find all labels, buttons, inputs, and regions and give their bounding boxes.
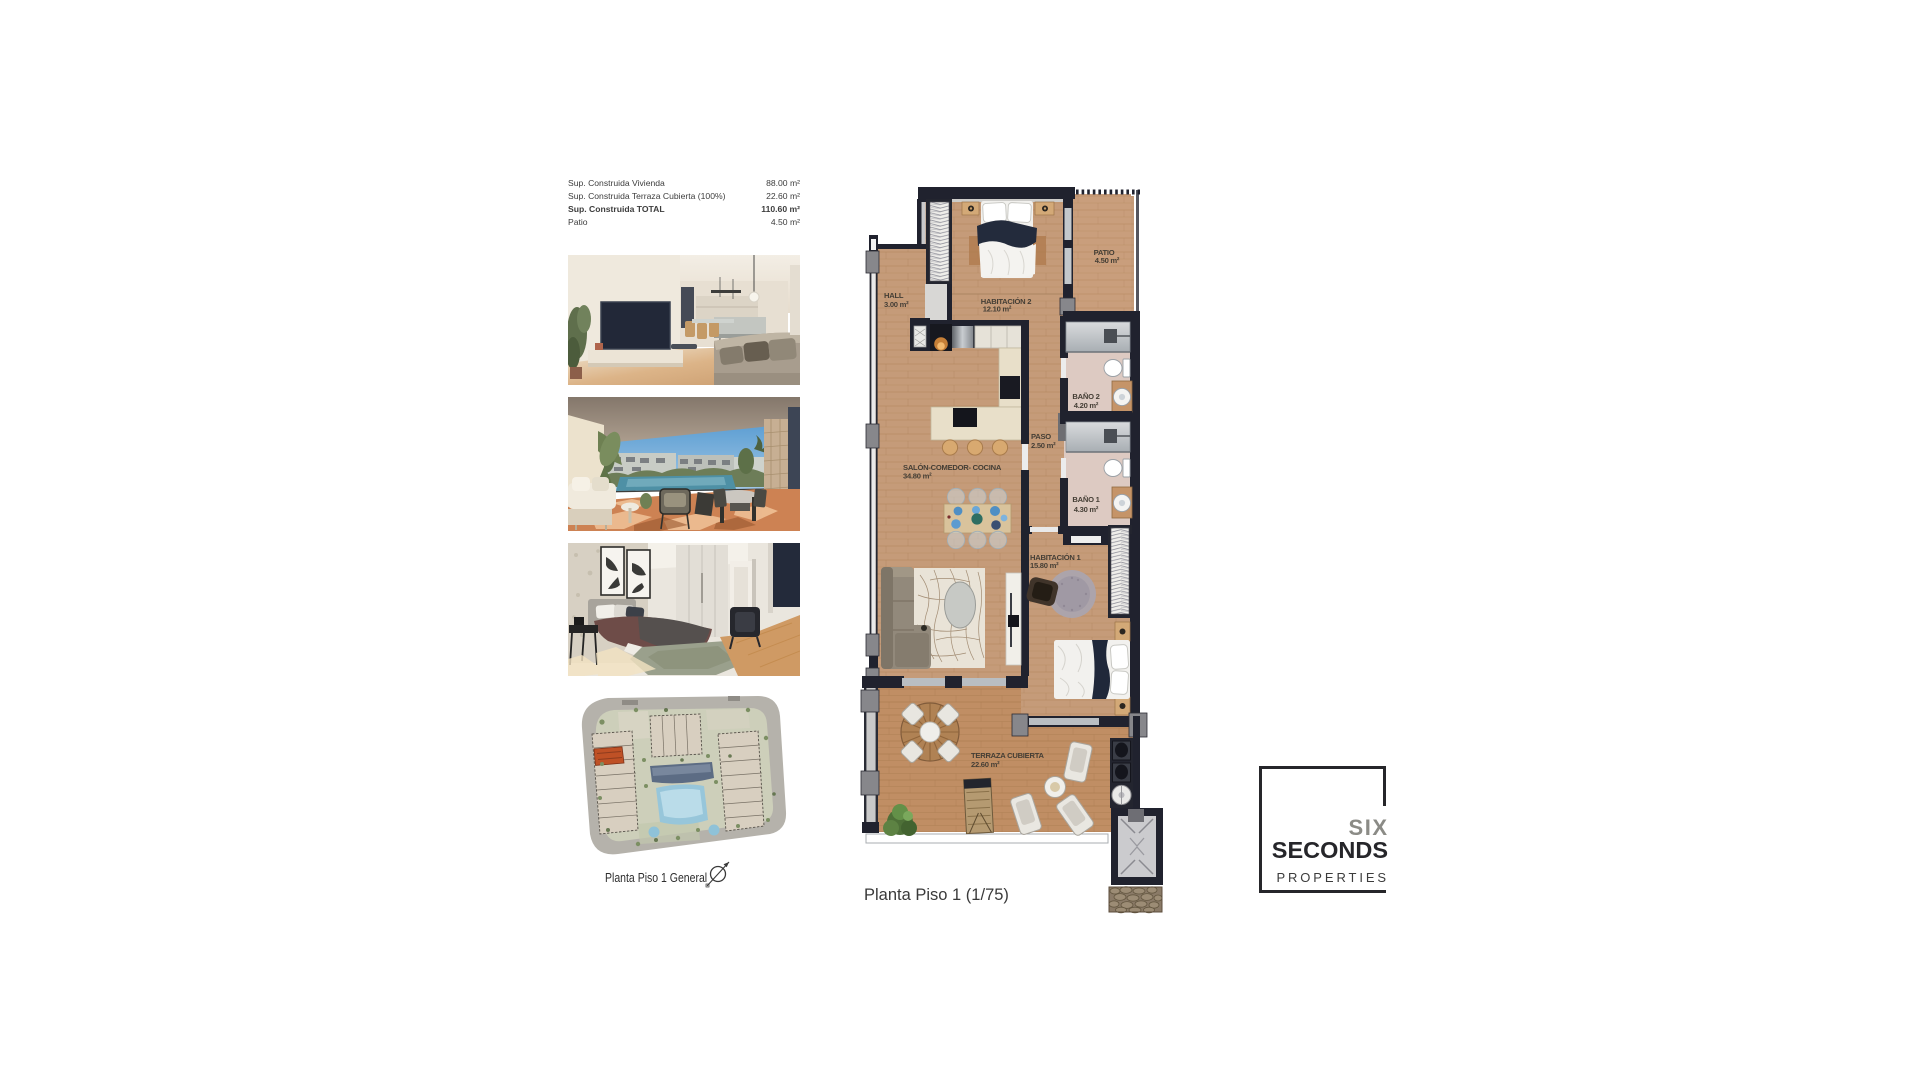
svg-text:BAÑO 1: BAÑO 1: [1072, 495, 1100, 504]
svg-text:2.50 m²: 2.50 m²: [1031, 441, 1056, 450]
svg-text:12.10 m²: 12.10 m²: [983, 305, 1012, 314]
svg-text:15.80 m²: 15.80 m²: [1030, 561, 1059, 570]
svg-text:4.50 m²: 4.50 m²: [1095, 256, 1120, 265]
svg-text:34.80 m²: 34.80 m²: [903, 472, 932, 481]
svg-text:3.00 m²: 3.00 m²: [884, 300, 909, 309]
svg-text:4.20 m²: 4.20 m²: [1074, 401, 1099, 410]
svg-text:PASO: PASO: [1031, 432, 1051, 441]
svg-text:4.30 m²: 4.30 m²: [1074, 505, 1099, 514]
svg-text:TERRAZA CUBIERTA: TERRAZA CUBIERTA: [971, 751, 1045, 760]
svg-text:BAÑO 2: BAÑO 2: [1072, 392, 1099, 401]
svg-text:HALL: HALL: [884, 291, 904, 300]
svg-text:22.60 m²: 22.60 m²: [971, 760, 1000, 769]
